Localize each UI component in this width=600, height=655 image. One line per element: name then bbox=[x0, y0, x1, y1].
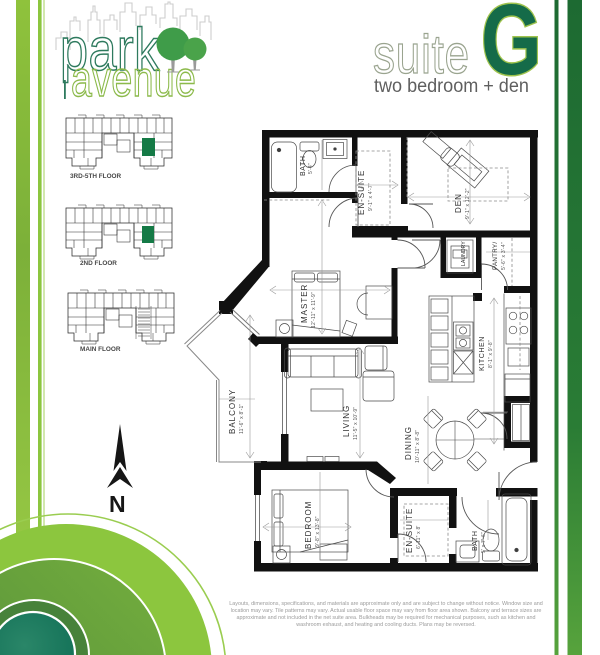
svg-text:5' x 7'-6": 5' x 7'-6" bbox=[481, 532, 487, 553]
svg-text:9'-1" x 4'-7": 9'-1" x 4'-7" bbox=[368, 183, 374, 211]
svg-text:8'-1" x 9'-8": 8'-1" x 9'-8" bbox=[488, 340, 494, 368]
svg-text:PANTRY/: PANTRY/ bbox=[492, 242, 499, 270]
svg-text:MASTER: MASTER bbox=[300, 284, 309, 323]
svg-text:2ND FLOOR: 2ND FLOOR bbox=[80, 260, 117, 267]
svg-text:MAIN FLOOR: MAIN FLOOR bbox=[80, 346, 121, 353]
svg-text:11'-5" x 10'-9": 11'-5" x 10'-9" bbox=[353, 407, 359, 440]
svg-text:DINING: DINING bbox=[404, 426, 413, 460]
svg-text:5'-6" x 3'-4": 5'-6" x 3'-4" bbox=[501, 242, 507, 270]
svg-text:EN-SUITE: EN-SUITE bbox=[357, 170, 366, 215]
svg-text:3RD-5TH FLOOR: 3RD-5TH FLOOR bbox=[70, 173, 122, 180]
svg-text:BALCONY: BALCONY bbox=[228, 389, 237, 434]
svg-text:BATH: BATH bbox=[300, 155, 307, 176]
svg-text:N: N bbox=[109, 491, 126, 517]
svg-text:approximate and not included i: approximate and not included in the net … bbox=[236, 615, 535, 621]
svg-text:KITCHEN: KITCHEN bbox=[479, 336, 486, 371]
svg-text:LAUNDRY: LAUNDRY bbox=[461, 241, 467, 266]
svg-text:9'-1" x 12'-2": 9'-1" x 12'-2" bbox=[465, 188, 471, 219]
svg-text:6'-11" x 8': 6'-11" x 8' bbox=[416, 525, 422, 549]
svg-text:LIVING: LIVING bbox=[342, 405, 351, 437]
svg-text:11'-6" x 8'-1": 11'-6" x 8'-1" bbox=[239, 404, 245, 434]
svg-text:two bedroom + den: two bedroom + den bbox=[374, 75, 529, 97]
svg-text:Layouts, dimensions, specifica: Layouts, dimensions, specifications, and… bbox=[229, 601, 542, 607]
svg-text:12'-11" x 11'-9": 12'-11" x 11'-9" bbox=[311, 292, 317, 328]
svg-text:9'-8" x 13'-8": 9'-8" x 13'-8" bbox=[315, 516, 321, 547]
svg-text:DEN: DEN bbox=[454, 193, 463, 213]
svg-text:avenue: avenue bbox=[71, 52, 196, 107]
svg-text:BEDROOM: BEDROOM bbox=[304, 501, 313, 549]
svg-text:BATH: BATH bbox=[472, 530, 479, 551]
svg-text:10'-11" x 8'-8": 10'-11" x 8'-8" bbox=[415, 430, 421, 463]
svg-text:5'-4": 5'-4" bbox=[308, 163, 314, 174]
svg-text:washroom exhaust, and heating: washroom exhaust, and heating and coolin… bbox=[295, 622, 476, 628]
svg-text:location may vary. Tile patter: location may vary. Tile patterns may var… bbox=[231, 608, 542, 614]
svg-text:EN-SUITE: EN-SUITE bbox=[405, 508, 414, 553]
